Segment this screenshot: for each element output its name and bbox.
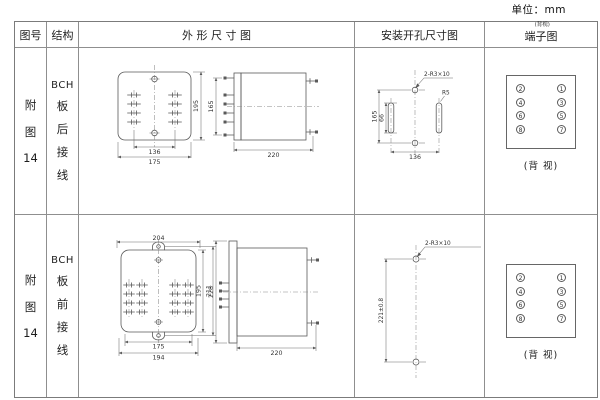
row1-structure-line: BCH	[51, 80, 74, 91]
row2-structure-line: 板	[57, 273, 69, 289]
terminal-col-left: 2 4 6 8	[516, 273, 525, 337]
dim-slot-length: 66	[379, 114, 386, 122]
dim-panel-height: 228	[208, 286, 215, 298]
header-terminal: (背视) 端子图	[485, 22, 597, 48]
terminal-box: 2 4 6 8 1 3 5 7	[506, 75, 576, 149]
row1-fig-no: 附 图 14	[15, 48, 47, 215]
row2-outline-drawing: 204 195 211 175 194 228	[79, 215, 355, 396]
header-outline: 外 形 尺 寸 图	[79, 22, 355, 48]
terminal-6: 6	[516, 111, 525, 120]
dim-depth: 220	[270, 350, 282, 357]
dim-outer-width: 194	[152, 355, 164, 362]
dim-inner-width: 175	[152, 344, 164, 351]
terminal-2: 2	[516, 84, 525, 93]
row2-fig-num: 14	[23, 326, 38, 340]
row1-outline-drawing: 195 136 175 165 220	[79, 48, 355, 214]
header-fig-no: 图号	[15, 22, 47, 48]
row1-mounting-drawing: 165 66 136 2-R3×10 R5	[355, 48, 485, 214]
terminal-3: 3	[557, 287, 566, 296]
terminal-col-left: 2 4 6 8	[516, 84, 525, 148]
terminal-8: 8	[516, 314, 525, 323]
dim-front-height: 195	[193, 100, 200, 112]
row2-structure-line: 线	[57, 342, 69, 358]
row1-structure-line: 后	[57, 121, 69, 137]
row2-structure: BCH 板 前 接 线	[47, 215, 79, 397]
spec-table: 图号 结构 外 形 尺 寸 图 安装开孔尺寸图 (背视) 端子图 附 图 14 …	[14, 21, 598, 398]
row1-structure-line: 板	[57, 98, 69, 114]
row1-structure-line: 线	[57, 167, 69, 183]
row1-outline-cell: 195 136 175 165 220	[79, 48, 355, 215]
terminal-caption: (背 视)	[524, 347, 558, 361]
dim-hole-pitch: 136	[148, 149, 160, 156]
header-structure: 结构	[47, 22, 79, 48]
row1-structure-line: 接	[57, 144, 69, 160]
row1-fig-num: 14	[23, 151, 38, 165]
row1-mounting-cell: 165 66 136 2-R3×10 R5	[355, 48, 485, 215]
dim-hole-pitch: 221±0.8	[379, 298, 385, 323]
dim-front-width: 175	[148, 159, 160, 166]
row2-mounting-cell: 221±0.8 2-R3×10	[355, 215, 485, 397]
label-holes: 2-R3×10	[424, 72, 450, 78]
row1-fig-char: 附	[25, 97, 37, 113]
row2-structure-line: 接	[57, 319, 69, 335]
row2-terminal-cell: 2 4 6 8 1 3 5 7 (背 视)	[485, 215, 597, 397]
row2-fig-no: 附 图 14	[15, 215, 47, 397]
terminal-6: 6	[516, 300, 525, 309]
unit-label: 单位：mm	[512, 2, 566, 17]
row1-terminal-cell: 2 4 6 8 1 3 5 7 (背 视)	[485, 48, 597, 215]
terminal-4: 4	[516, 287, 525, 296]
terminal-diagram: 2 4 6 8 1 3 5 7 (背 视)	[485, 264, 597, 361]
terminal-5: 5	[557, 111, 566, 120]
terminal-1: 1	[557, 84, 566, 93]
terminal-1: 1	[557, 273, 566, 282]
label-holes: 2-R3×10	[425, 241, 451, 247]
dim-hole-span: 165	[372, 110, 379, 122]
label-radius: R5	[442, 91, 450, 97]
terminal-3: 3	[557, 98, 566, 107]
terminal-2: 2	[516, 273, 525, 282]
row1-fig-char: 图	[25, 124, 37, 140]
terminal-col-right: 1 3 5 7	[557, 273, 566, 337]
dim-inner-height: 195	[196, 285, 203, 297]
terminal-4: 4	[516, 98, 525, 107]
row2-fig-char: 图	[25, 299, 37, 315]
dim-depth: 220	[267, 152, 279, 159]
row2-fig-char: 附	[25, 272, 37, 288]
row2-structure-line: BCH	[51, 255, 74, 266]
header-terminal-label: 端子图	[525, 28, 558, 44]
terminal-caption: (背 视)	[524, 158, 558, 172]
terminal-diagram: 2 4 6 8 1 3 5 7 (背 视)	[485, 75, 597, 172]
row2-outline-cell: 204 195 211 175 194 228	[79, 215, 355, 397]
dim-top-width: 204	[152, 235, 164, 242]
terminal-7: 7	[557, 314, 566, 323]
terminal-col-right: 1 3 5 7	[557, 84, 566, 148]
dim-terminal-span: 165	[208, 100, 215, 112]
header-terminal-note: (背视)	[535, 22, 550, 28]
row1-structure: BCH 板 后 接 线	[47, 48, 79, 215]
row2-mounting-drawing: 221±0.8 2-R3×10	[355, 215, 485, 396]
dim-slot-pitch: 136	[409, 154, 421, 161]
header-mounting: 安装开孔尺寸图	[355, 22, 485, 48]
row2-structure-line: 前	[57, 296, 69, 312]
terminal-box: 2 4 6 8 1 3 5 7	[506, 264, 576, 338]
terminal-5: 5	[557, 300, 566, 309]
terminal-7: 7	[557, 125, 566, 134]
terminal-8: 8	[516, 125, 525, 134]
